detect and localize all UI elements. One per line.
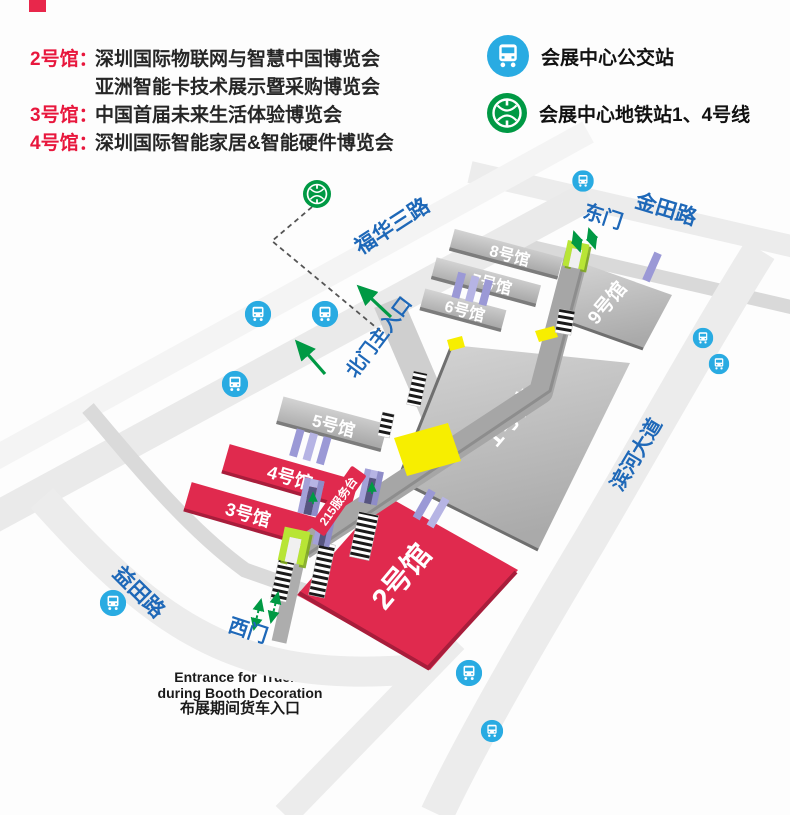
metro-map-icon (303, 180, 331, 208)
stairs-hatch-5 (378, 412, 395, 438)
site-map: 8号馆 7号馆 6号馆 5号馆 4号馆 3号馆 (0, 0, 790, 815)
bus-stop-icon-6 (456, 660, 482, 686)
bus-stop-icon-1 (572, 170, 594, 192)
bus-stop-icon-7 (481, 720, 503, 742)
venue-map-page: 2号馆： 深圳国际物联网与智慧中国博览会 亚洲智能卡技术展示暨采购博览会 3号馆… (0, 0, 790, 815)
bus-stop-icon-2 (245, 301, 271, 327)
bus-stop-icon-4 (222, 371, 248, 397)
bus-stop-icon-8 (693, 328, 714, 349)
east-gate-arrow-2 (589, 229, 595, 248)
bus-stop-icon-9 (709, 354, 730, 375)
bus-stop-icon-3 (312, 301, 338, 327)
bus-stop-icon-5 (100, 590, 126, 616)
